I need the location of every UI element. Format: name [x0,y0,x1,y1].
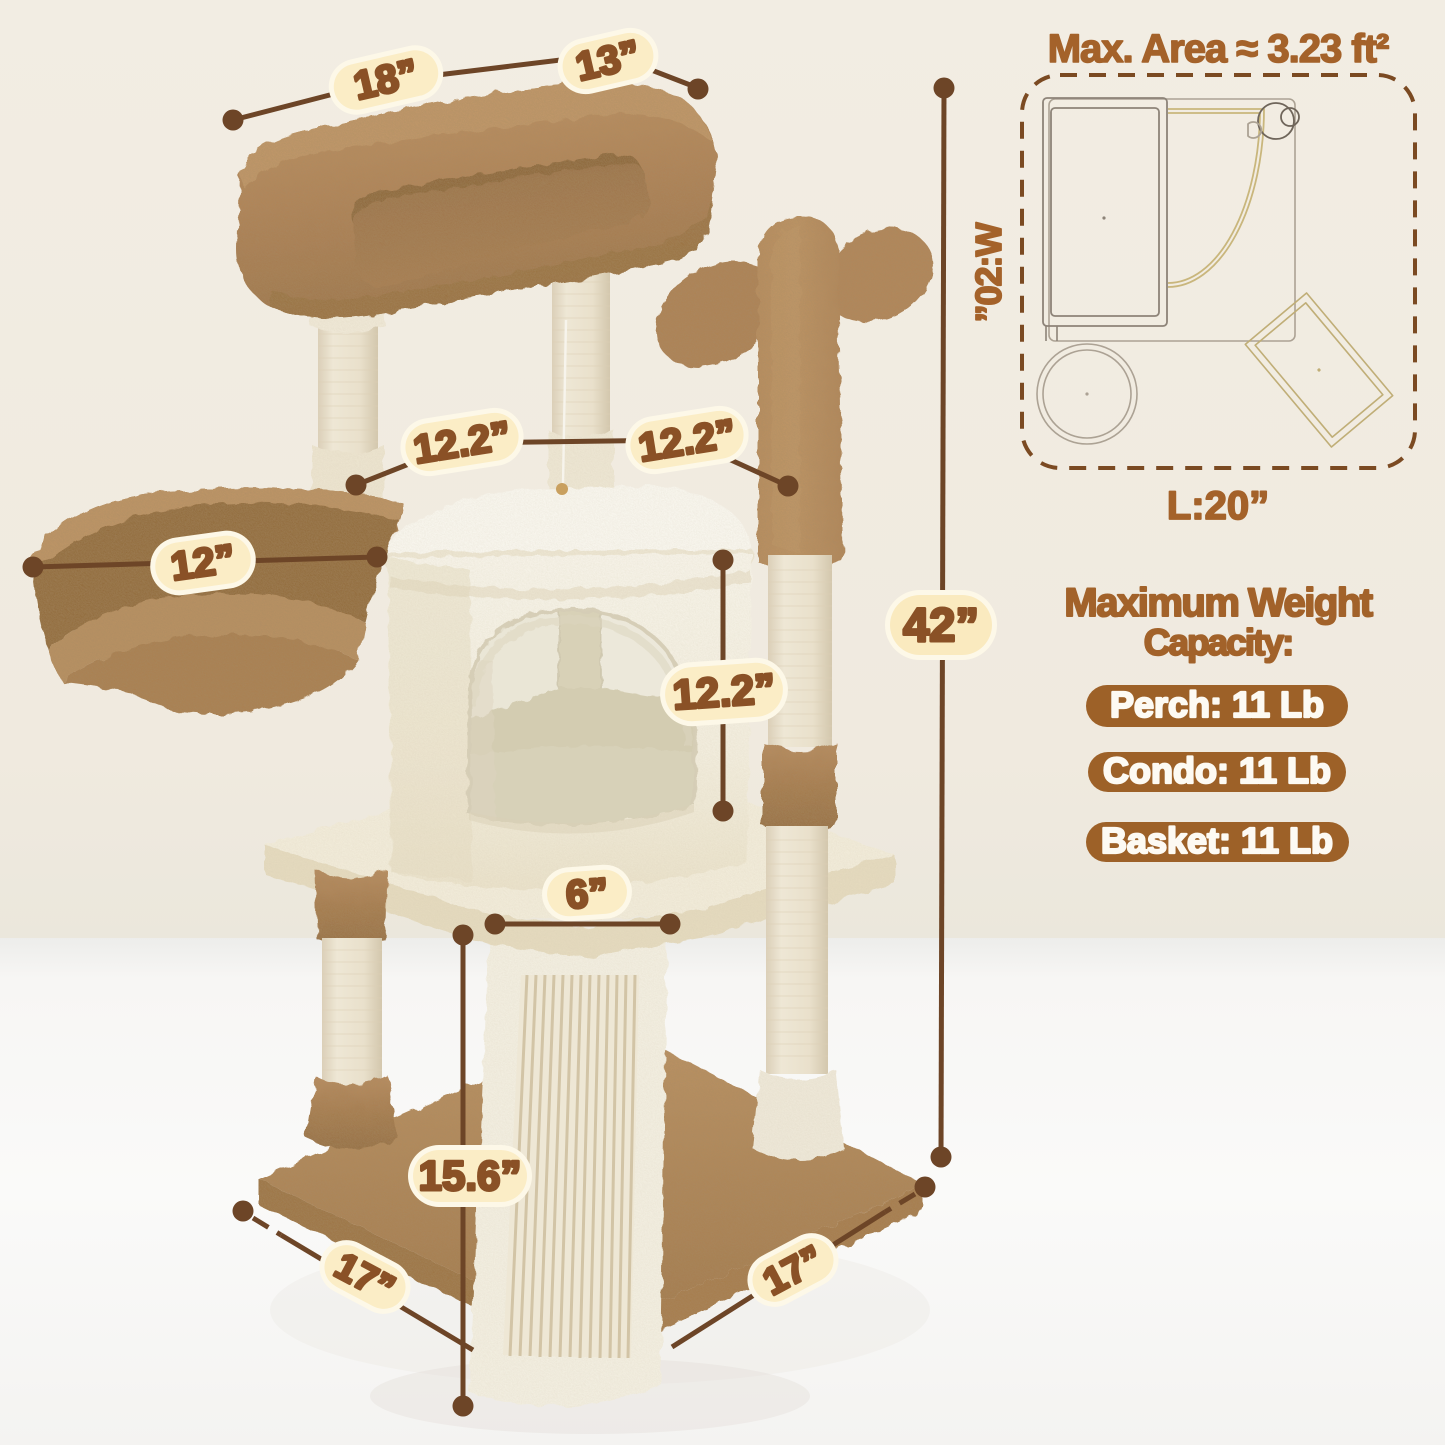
svg-text:Basket: 11 Lb: Basket: 11 Lb [1101,820,1333,861]
svg-text:”02:W: ”02:W [968,222,1009,322]
svg-text:Perch: 11 Lb: Perch: 11 Lb [1110,684,1324,725]
svg-text:12.2”: 12.2” [671,664,777,718]
svg-text:15.6”: 15.6” [419,1152,522,1199]
svg-text:12”: 12” [168,537,238,590]
svg-text:Maximum Weight: Maximum Weight [1064,581,1372,625]
svg-text:Capacity:: Capacity: [1144,622,1293,663]
svg-text:42”: 42” [903,598,979,651]
svg-text:Max. Area ≈ 3.23 ft²: Max. Area ≈ 3.23 ft² [1048,27,1389,71]
svg-text:L:20”: L:20” [1167,484,1269,528]
svg-text:6”: 6” [564,871,609,918]
svg-text:Condo: 11 Lb: Condo: 11 Lb [1103,750,1331,791]
